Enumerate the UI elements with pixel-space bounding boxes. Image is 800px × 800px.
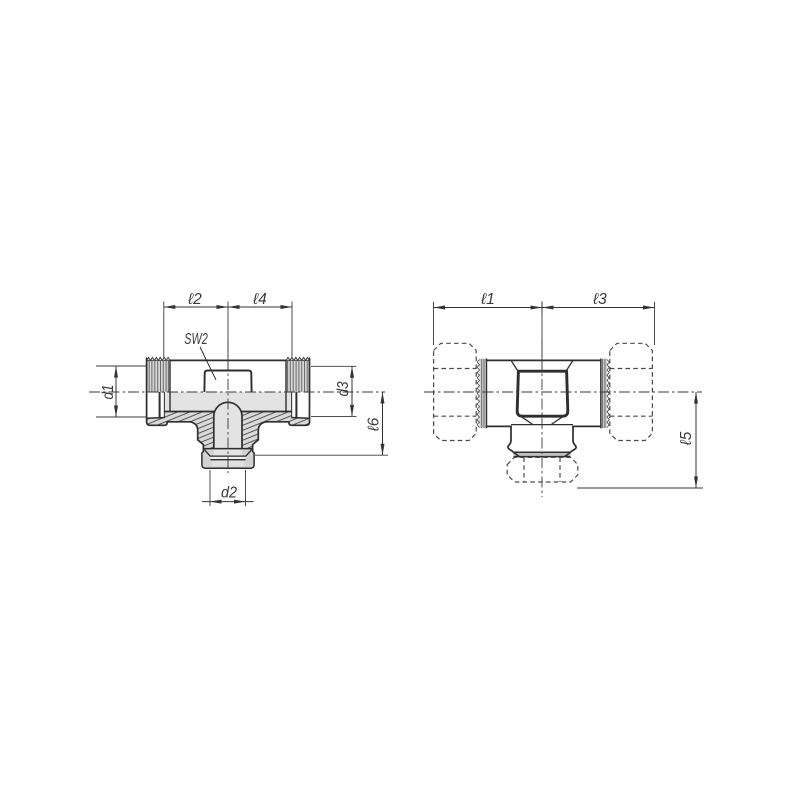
svg-text:ℓ3: ℓ3 [592, 291, 607, 308]
svg-text:d2: d2 [221, 485, 237, 502]
svg-text:ℓ2: ℓ2 [187, 291, 202, 308]
svg-text:ℓ6: ℓ6 [366, 417, 383, 432]
svg-text:ℓ4: ℓ4 [252, 291, 267, 308]
svg-text:ℓ1: ℓ1 [480, 291, 495, 308]
svg-text:ℓ5: ℓ5 [678, 431, 695, 446]
svg-text:d1: d1 [100, 385, 117, 400]
svg-text:d3: d3 [335, 381, 352, 396]
svg-text:SW2: SW2 [184, 331, 208, 348]
